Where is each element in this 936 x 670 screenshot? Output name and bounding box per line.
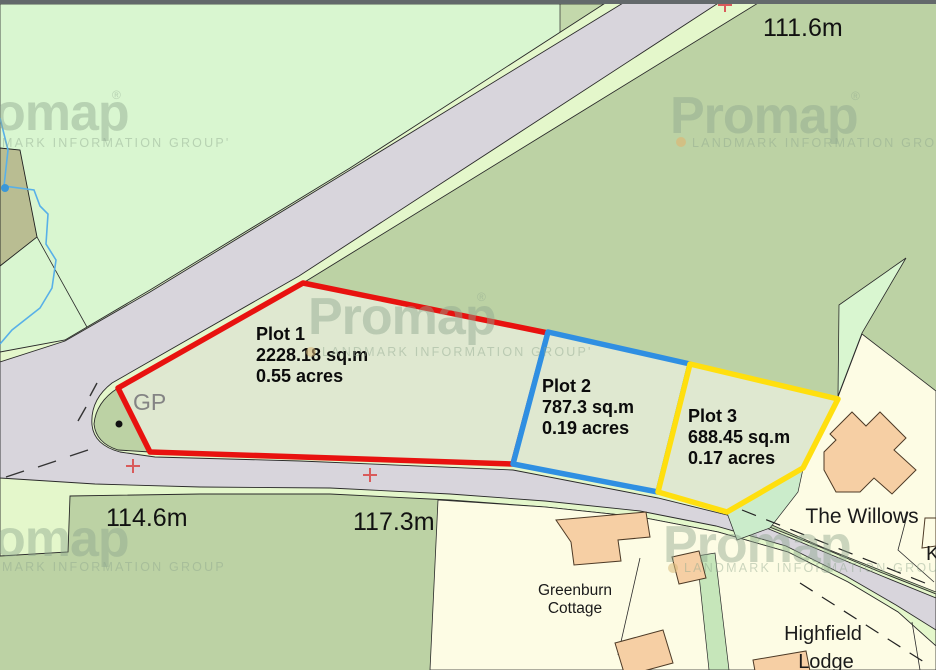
svg-text:MARK INFORMATION GROUP: MARK INFORMATION GROUP — [2, 560, 226, 574]
svg-text:0.17 acres: 0.17 acres — [688, 448, 775, 468]
svg-text:688.45 sq.m: 688.45 sq.m — [688, 427, 790, 447]
label-cottage: Cottage — [548, 600, 602, 617]
spot-height-111: 111.6m — [763, 14, 843, 42]
watermark-bullet-icon — [668, 563, 678, 573]
svg-text:®: ® — [851, 89, 860, 103]
svg-text:Plot 1: Plot 1 — [256, 324, 305, 344]
map-canvas: 111.6m 114.6m 117.3m GP Plot 1 2228.18 s… — [0, 0, 936, 670]
svg-text:MARK INFORMATION GROUP': MARK INFORMATION GROUP' — [2, 136, 230, 150]
svg-text:LANDMARK INFORMATION GROUP': LANDMARK INFORMATION GROUP' — [692, 136, 936, 150]
spot-height-117: 117.3m — [353, 508, 435, 536]
svg-text:Plot 3: Plot 3 — [688, 406, 737, 426]
svg-text:0.55 acres: 0.55 acres — [256, 366, 343, 386]
label-lodge: Lodge — [798, 651, 854, 670]
svg-text:®: ® — [477, 290, 486, 304]
svg-text:787.3 sq.m: 787.3 sq.m — [542, 397, 634, 417]
watermark-bullet-icon — [676, 137, 686, 147]
svg-text:omap: omap — [0, 84, 129, 142]
svg-text:0.19 acres: 0.19 acres — [542, 418, 629, 438]
gp-label: GP — [133, 389, 166, 415]
window-top-edge-bar — [0, 0, 936, 4]
svg-text:Plot 2: Plot 2 — [542, 376, 591, 396]
label-greenburn: Greenburn — [538, 582, 612, 599]
watermark-bullet-icon — [306, 347, 316, 357]
label-highfield: Highfield — [784, 623, 862, 645]
gp-post-dot — [116, 421, 123, 428]
svg-text:Promap: Promap — [308, 288, 496, 346]
svg-text:LANDMARK INFORMATION GROUP: LANDMARK INFORMATION GROUP — [684, 561, 936, 575]
stream-marker-dot — [1, 184, 9, 192]
svg-text:®: ® — [112, 88, 121, 102]
svg-text:LANDMARK INFORMATION GROUP': LANDMARK INFORMATION GROUP' — [322, 345, 593, 359]
